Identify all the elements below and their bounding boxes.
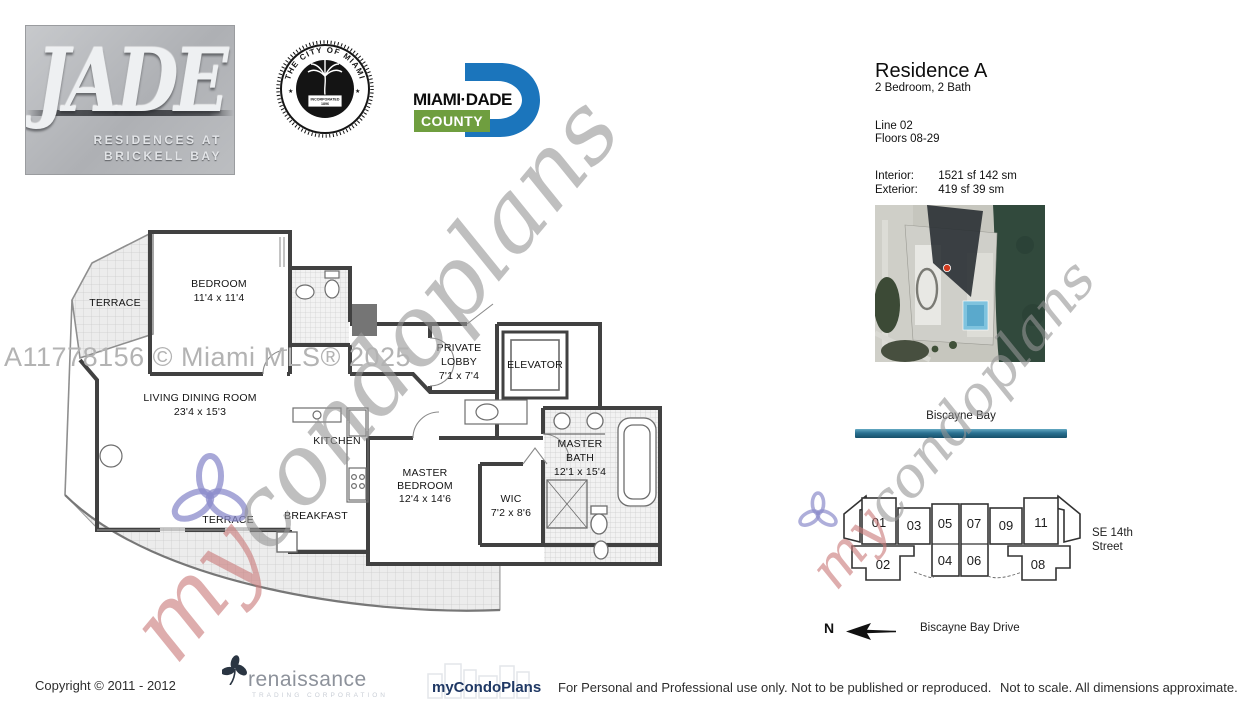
mls-watermark: A11778156 © Miami MLS® 2025	[4, 342, 411, 373]
unit-label-06: 06	[967, 553, 981, 568]
jade-logo: JADE RESIDENCES AT BRICKELL BAY	[25, 25, 235, 175]
residence-line: Line 02	[875, 120, 1105, 133]
room-dim-living: 23'4 x 15'3	[174, 406, 226, 418]
jade-subtitle-line2: BRICKELL BAY	[93, 148, 222, 164]
bedroom-closet-lines	[280, 237, 284, 267]
street-label-line2: Street	[1092, 540, 1133, 554]
residence-subtitle: 2 Bedroom, 2 Bath	[875, 82, 1105, 95]
unit-label-09: 09	[999, 518, 1013, 533]
seal-banner-line2: 1896	[321, 102, 329, 106]
copyright-text: Copyright © 2011 - 2012	[35, 678, 176, 693]
room-label-bedroom: BEDROOM	[191, 278, 247, 290]
jade-subtitle-line1: RESIDENCES AT	[93, 132, 222, 148]
street-label: SE 14th Street	[1092, 526, 1133, 554]
floor-plan-sheet: JADE RESIDENCES AT BRICKELL BAY THE CITY…	[0, 0, 1249, 720]
unit-label-07: 07	[967, 516, 981, 531]
room-label-terrace-upper: TERRACE	[89, 297, 141, 309]
room-dim-master-bedroom: 12'4 x 14'6	[399, 493, 451, 505]
jade-logo-title: JADE	[34, 25, 225, 142]
exterior-label: Exterior:	[875, 184, 935, 197]
lobby-vanity	[465, 400, 527, 424]
room-label-elevator: ELEVATOR	[507, 359, 563, 371]
renaissance-logo-icon	[222, 655, 248, 685]
residence-title: Residence A	[875, 60, 1105, 82]
location-marker-icon	[943, 264, 950, 271]
seal-star-right: ★	[355, 88, 360, 95]
usage-notice: For Personal and Professional use only. …	[558, 680, 991, 695]
scale-notice: Not to scale. All dimensions approximate…	[1000, 680, 1238, 695]
room-label-living: LIVING DINING ROOM	[143, 392, 256, 404]
room-dim-bedroom: 11'4 x 11'4	[194, 292, 245, 304]
unit-label-08: 08	[1031, 557, 1045, 572]
street-label-line1: SE 14th	[1092, 526, 1133, 540]
seal-star-left: ★	[288, 88, 293, 95]
jade-logo-subtitle: RESIDENCES AT BRICKELL BAY	[93, 132, 222, 164]
interior-label: Interior:	[875, 170, 935, 183]
room-label-master-bedroom-2: BEDROOM	[397, 480, 453, 492]
miami-dade-county-tag: COUNTY	[414, 110, 490, 132]
residence-interior-row: Interior: 1521 sf 142 sm	[875, 170, 1105, 183]
interior-value: 1521 sf 142 sm	[938, 170, 1017, 182]
residence-info: Residence A 2 Bedroom, 2 Bath Line 02 Fl…	[875, 60, 1105, 197]
room-label-wic: WIC	[500, 493, 521, 505]
room-dim-master-bath: 12'1 x 15'4	[554, 466, 606, 478]
unit-label-05: 05	[938, 516, 952, 531]
miami-dade-name: MIAMI·DADE	[413, 90, 512, 110]
residence-exterior-row: Exterior: 419 sf 39 sm	[875, 184, 1105, 197]
unit-label-04: 04	[938, 553, 952, 568]
residence-floors: Floors 08-29	[875, 133, 1105, 146]
mycondoplans-brand-text: myCondoPlans	[432, 679, 541, 696]
unit-label-11: 11	[1034, 515, 1048, 530]
room-label-master-bath-2: BATH	[566, 452, 594, 464]
keyplan-east-wing-tip	[1056, 496, 1080, 542]
terrace-upper-area	[72, 232, 153, 358]
living-table	[100, 445, 122, 467]
room-label-master-bath-1: MASTER	[558, 438, 603, 450]
north-label: N	[824, 620, 834, 636]
biscayne-bay-drive-label: Biscayne Bay Drive	[920, 622, 1020, 634]
room-dim-wic: 7'2 x 8'6	[491, 507, 531, 519]
seal-banner-line1: INCORPORATED	[311, 98, 340, 102]
room-label-master-bedroom-1: MASTER	[403, 467, 448, 479]
north-arrow-icon	[846, 623, 898, 640]
city-of-miami-seal-icon: THE CITY OF MIAMI FLORIDA ★ ★ INCORPORAT…	[275, 38, 375, 140]
exterior-value: 419 sf 39 sm	[938, 184, 1004, 196]
renaissance-logo-subtext: TRADING CORPORATION	[252, 692, 388, 699]
renaissance-logo-text: renaissance	[248, 668, 367, 692]
